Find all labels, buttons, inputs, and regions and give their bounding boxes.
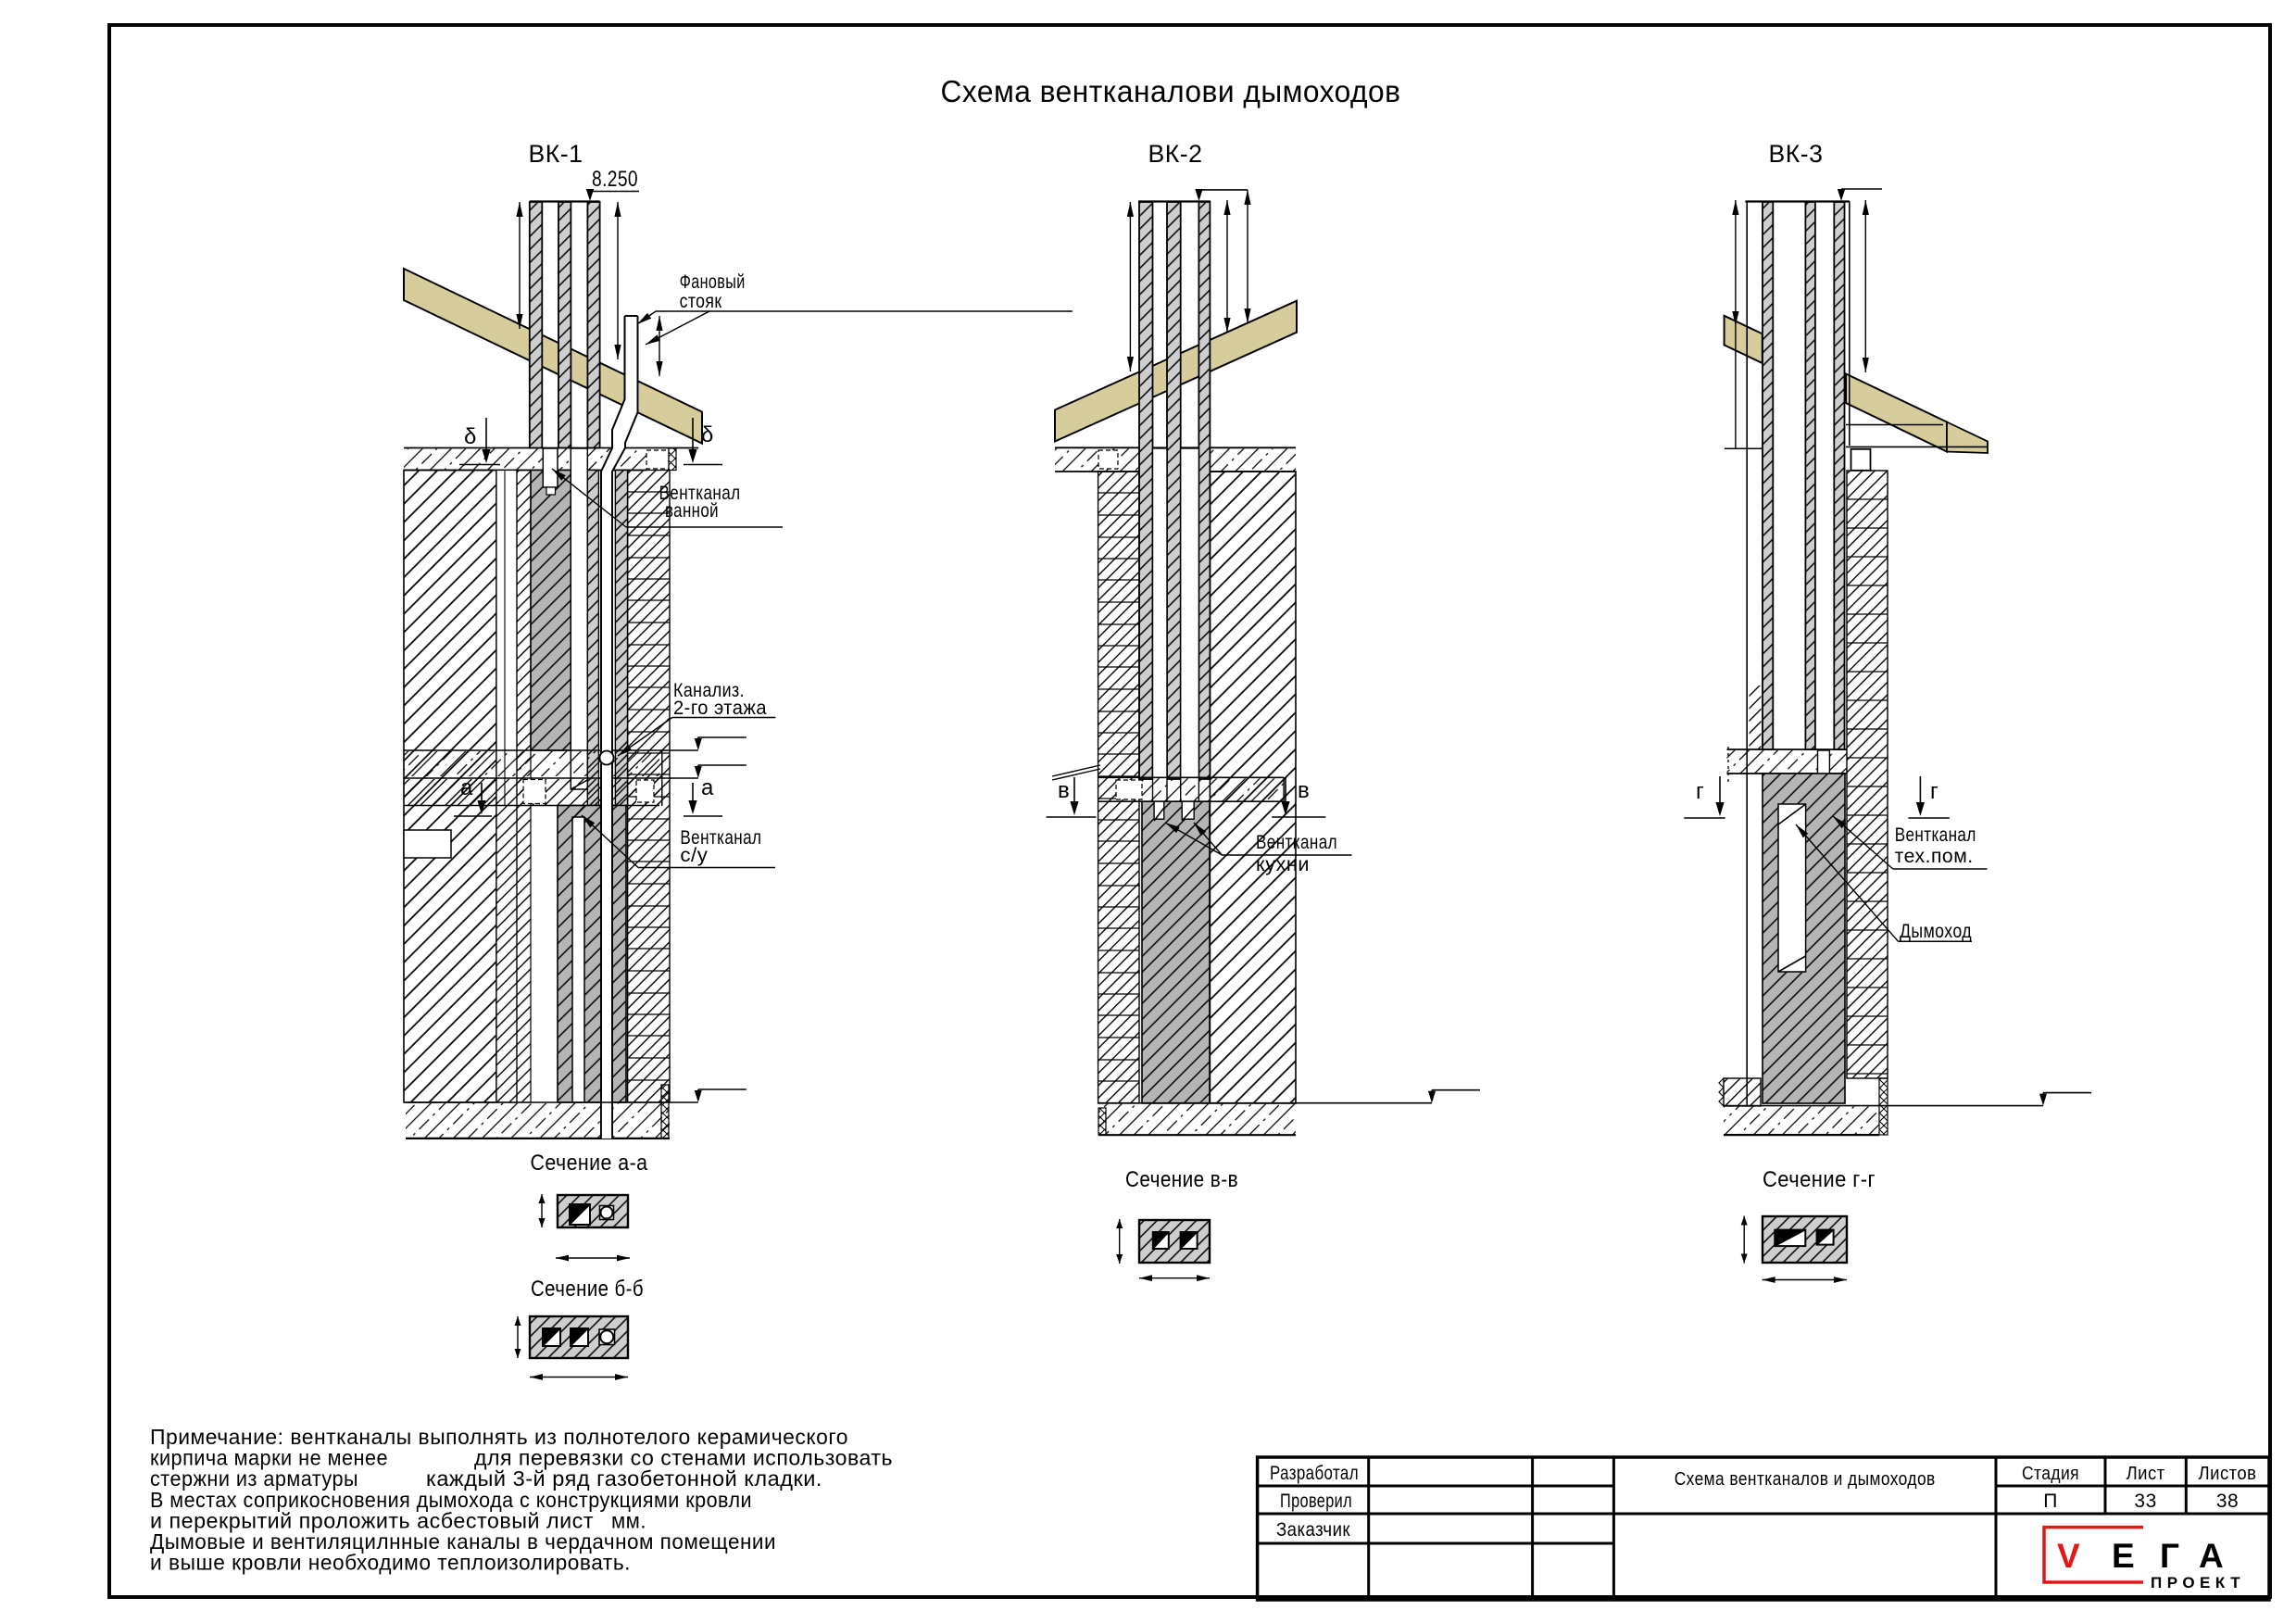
svg-text:кухни: кухни bbox=[1256, 854, 1310, 875]
svg-text:Схема вентканалови дымоходов: Схема вентканалови дымоходов bbox=[941, 74, 1401, 108]
svg-text:а: а bbox=[460, 775, 473, 800]
svg-text:ПРОЕКТ: ПРОЕКТ bbox=[2151, 1574, 2245, 1592]
svg-text:Лист: Лист bbox=[2127, 1464, 2165, 1484]
svg-text:в: в bbox=[1298, 778, 1310, 803]
svg-text:П: П bbox=[2043, 1491, 2058, 1512]
svg-text:тех.пом.: тех.пом. bbox=[1895, 846, 1974, 867]
svg-text:Сечение в-в: Сечение в-в bbox=[1125, 1167, 1238, 1192]
svg-text:в: в bbox=[1058, 778, 1070, 803]
svg-text:Проверил: Проверил bbox=[1280, 1491, 1352, 1512]
svg-text:Дымоход: Дымоход bbox=[1900, 921, 1972, 942]
svg-text:Листов: Листов bbox=[2199, 1464, 2257, 1484]
svg-text:Заказчик: Заказчик bbox=[1276, 1519, 1350, 1541]
svg-text:А: А bbox=[2199, 1537, 2224, 1575]
svg-text:ВК-2: ВК-2 bbox=[1148, 140, 1203, 168]
svg-text:8.250: 8.250 bbox=[592, 167, 638, 192]
svg-text:2-го этажа: 2-го этажа bbox=[673, 698, 767, 719]
svg-text:ВК-3: ВК-3 bbox=[1769, 140, 1824, 168]
svg-text:33: 33 bbox=[2134, 1491, 2156, 1512]
svg-text:V: V bbox=[2057, 1537, 2080, 1575]
svg-text:и выше кровли необходимо тепло: и выше кровли необходимо теплоизолироват… bbox=[150, 1551, 631, 1575]
svg-text:ВК-1: ВК-1 bbox=[529, 140, 583, 168]
svg-text:Сечение а-а: Сечение а-а bbox=[531, 1151, 648, 1176]
svg-text:с/у: с/у bbox=[680, 845, 708, 866]
svg-text:г: г bbox=[1930, 779, 1938, 804]
svg-text:Сечение б-б: Сечение б-б bbox=[531, 1277, 644, 1302]
svg-text:Г: Г bbox=[2160, 1537, 2179, 1575]
svg-text:Е: Е bbox=[2112, 1537, 2135, 1575]
svg-text:38: 38 bbox=[2216, 1491, 2239, 1512]
svg-text:Сечение г-г: Сечение г-г bbox=[1763, 1167, 1876, 1192]
svg-text:Вентканал: Вентканал bbox=[1256, 832, 1337, 853]
svg-text:стояк: стояк bbox=[680, 291, 722, 312]
svg-text:а: а bbox=[701, 775, 714, 800]
svg-text:Разработал: Разработал bbox=[1270, 1463, 1359, 1484]
svg-text:δ: δ bbox=[701, 422, 714, 447]
svg-text:Схема вентканалов и дымоходов: Схема вентканалов и дымоходов bbox=[1675, 1469, 1936, 1490]
svg-text:Вентканал: Вентканал bbox=[1895, 824, 1976, 846]
svg-text:Стадия: Стадия bbox=[2022, 1464, 2079, 1484]
svg-text:δ: δ bbox=[464, 424, 477, 449]
svg-text:ванной: ванной bbox=[665, 500, 719, 522]
svg-text:Фановый: Фановый bbox=[680, 271, 746, 293]
svg-text:г: г bbox=[1696, 779, 1704, 804]
